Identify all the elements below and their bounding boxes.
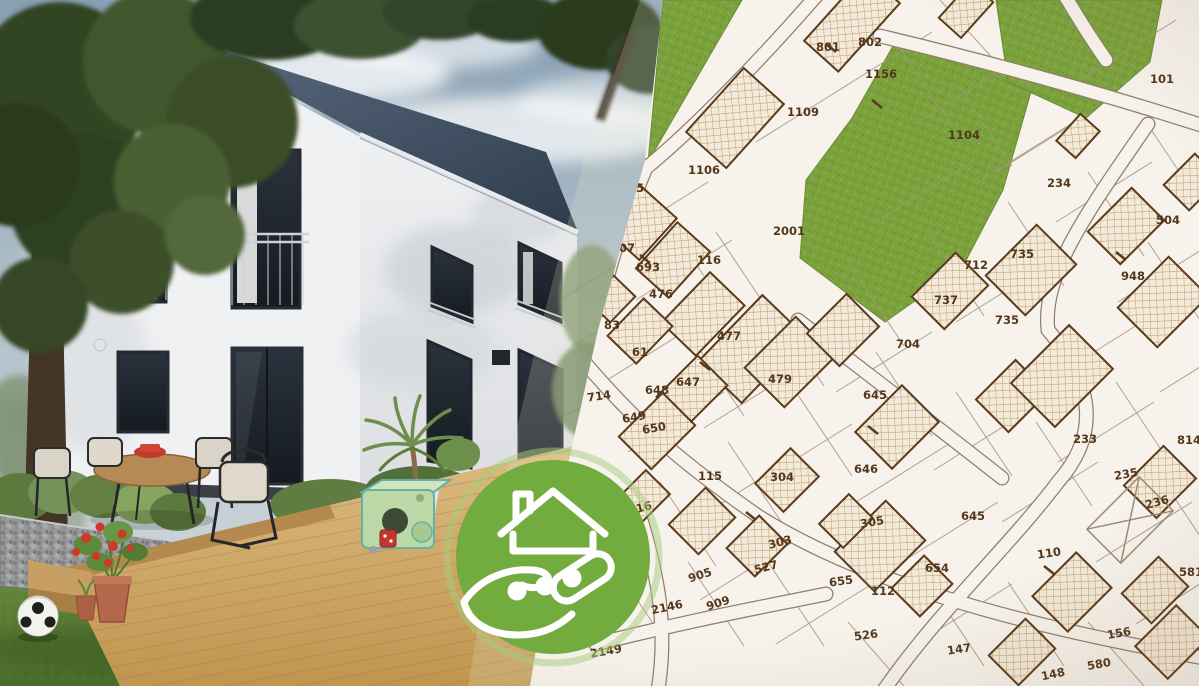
real-estate-composite-image: 8018021156101110911041106252342001707504… bbox=[0, 0, 1199, 686]
turnkey-badge bbox=[438, 444, 668, 686]
